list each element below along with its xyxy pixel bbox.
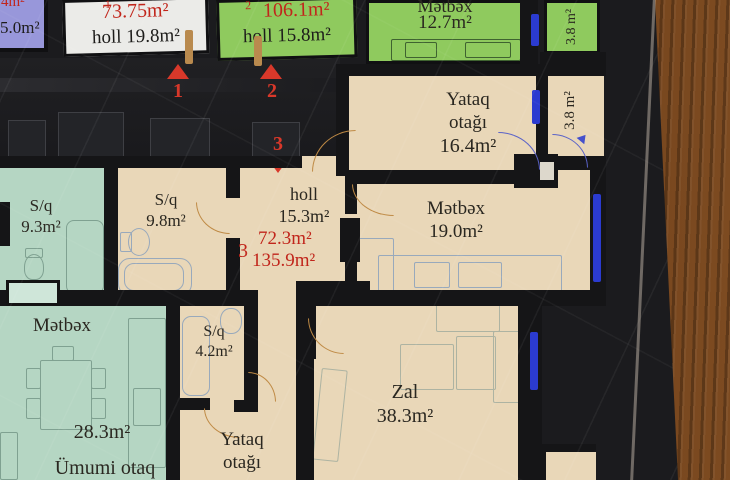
balcony-area-label: 3.8 m² bbox=[561, 91, 578, 130]
room-name: Zal bbox=[348, 380, 462, 404]
wall bbox=[0, 156, 338, 168]
unit-area: 106.1m² bbox=[229, 0, 364, 24]
entrance-marker-1-arrow bbox=[167, 64, 189, 79]
room-name: holl bbox=[248, 184, 360, 206]
room-label-yataq-small: Yataq otağı bbox=[196, 428, 288, 474]
entrance-marker-3-number: 3 bbox=[273, 133, 283, 156]
sofa bbox=[0, 432, 18, 480]
room-area-label: 16.4m² bbox=[400, 134, 536, 158]
chair bbox=[52, 346, 74, 361]
room-area-label: 12.7m² bbox=[369, 11, 521, 34]
wall bbox=[104, 156, 118, 304]
chair bbox=[91, 368, 106, 389]
room-metbex-green: Mətbəx 12.7m² bbox=[366, 0, 524, 64]
room-label-holl: holl 15.3m² bbox=[248, 184, 360, 228]
window-marker bbox=[531, 14, 539, 46]
room-label-sq-small: S/q 4.2m² bbox=[184, 322, 244, 361]
entrance-marker-1-number: 1 bbox=[173, 80, 183, 103]
chair bbox=[26, 368, 41, 389]
room-name: S/q bbox=[184, 322, 244, 342]
facade-roof-line bbox=[0, 78, 340, 92]
wall bbox=[518, 300, 542, 480]
room-label-metbex-left: Mətbəx bbox=[22, 314, 102, 337]
sofa bbox=[436, 304, 500, 332]
room-name-line1: Yataq bbox=[196, 428, 288, 451]
kitchen-sink bbox=[458, 262, 502, 288]
kitchen-stove bbox=[414, 262, 450, 288]
room-area-label: 19.0m² bbox=[398, 220, 514, 243]
room-area-label: 4.2m² bbox=[184, 342, 244, 362]
floorplan-photo: Mətbəx 12.7m² 3.8 m² 4m² 5.0m² 1 73.75m²… bbox=[0, 0, 730, 480]
balcony-lower bbox=[540, 444, 596, 480]
room-label-zal: Zal 38.3m² bbox=[348, 380, 462, 429]
unit-number: 3 bbox=[238, 240, 248, 263]
window-marker bbox=[530, 332, 538, 390]
wall bbox=[166, 298, 180, 480]
toilet-tank bbox=[120, 232, 132, 252]
room-name-line2: otağı bbox=[400, 111, 536, 134]
room-label-sq-left: S/q 9.3m² bbox=[8, 196, 74, 237]
door-gap bbox=[258, 290, 298, 306]
legend-box-unit2: 2 106.1m² holl 15.8m² bbox=[216, 0, 358, 61]
room-name-line1: Yataq bbox=[400, 88, 536, 111]
balcony-green: 3.8 m² bbox=[544, 0, 600, 54]
shaft-box bbox=[6, 280, 60, 306]
room-area-label: 38.3m² bbox=[348, 404, 462, 428]
entrance-marker-2-arrow bbox=[260, 64, 282, 79]
door-post bbox=[185, 30, 193, 64]
kitchen-sink bbox=[465, 42, 511, 58]
room-name: Mətbəx bbox=[398, 197, 514, 220]
armchair bbox=[456, 336, 496, 390]
room-name: S/q bbox=[8, 196, 74, 217]
legend-area-red: 4m² bbox=[1, 0, 25, 11]
balcony-area-label: 3.8 m² bbox=[564, 9, 580, 45]
balcony-beige: 3.8 m² bbox=[544, 64, 596, 156]
toilet-tank bbox=[25, 248, 43, 258]
room-area-metbex-left: 28.3m² bbox=[62, 420, 142, 444]
unit-area-total: 135.9m² bbox=[252, 250, 315, 272]
room-label-metbex-main: Mətbəx 19.0m² bbox=[398, 197, 514, 243]
room-label-yataq-main: Yataq otağı 16.4m² bbox=[400, 88, 536, 159]
chair bbox=[26, 398, 41, 419]
room-area-label: 9.8m² bbox=[134, 211, 198, 232]
chair bbox=[91, 398, 106, 419]
room-area-label: 9.3m² bbox=[8, 217, 74, 238]
door-post bbox=[254, 36, 262, 66]
room-name: S/q bbox=[134, 190, 198, 211]
unit-holl-area: holl 15.8m² bbox=[220, 23, 355, 49]
entrance-marker-2-number: 2 bbox=[267, 80, 277, 103]
room-name: Mətbəx bbox=[22, 314, 102, 337]
plan-sheet: Mətbəx 12.7m² 3.8 m² 4m² 5.0m² 1 73.75m²… bbox=[0, 0, 682, 480]
kitchen-stove bbox=[405, 42, 437, 58]
room-name-line2: otağı bbox=[196, 451, 288, 474]
bathtub-inner bbox=[124, 263, 184, 291]
room-label-sq-mid: S/q 9.8m² bbox=[134, 190, 198, 231]
unit-area: 73.75m² bbox=[65, 0, 206, 25]
wall bbox=[296, 355, 314, 480]
window-marker bbox=[593, 194, 601, 282]
room-secondary-name: Ümumi otaq bbox=[40, 456, 170, 480]
wall bbox=[540, 52, 606, 64]
unit-area-living: 72.3m² bbox=[258, 228, 312, 250]
legend-box-partial: 4m² 5.0m² bbox=[0, 0, 48, 52]
legend-area-black: 5.0m² bbox=[0, 18, 40, 38]
room-area-label: 15.3m² bbox=[248, 206, 360, 228]
